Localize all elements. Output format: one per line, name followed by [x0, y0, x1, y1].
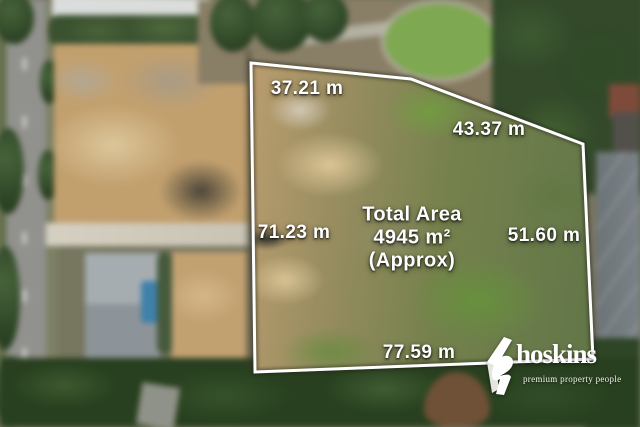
hoskins-h-ribbon-icon	[484, 337, 520, 395]
measurement-label-left: 71.23 m	[258, 222, 331, 244]
agency-name: hoskins	[516, 339, 596, 370]
total-area-qualifier: (Approx)	[362, 250, 462, 273]
measurement-label-top: 37.21 m	[271, 78, 344, 100]
total-area-caption: Total Area 4945 m² (Approx)	[362, 204, 462, 273]
measurement-label-bottom: 77.59 m	[383, 342, 456, 364]
measurement-label-top-right: 43.37 m	[453, 119, 526, 141]
agency-tagline: premium property people	[523, 374, 621, 384]
listing-image: 37.21 m 43.37 m 71.23 m 51.60 m 77.59 m …	[0, 0, 640, 427]
measurement-label-right: 51.60 m	[508, 225, 581, 247]
agency-logo: hoskins premium property people	[484, 334, 640, 398]
total-area-value: 4945 m²	[362, 227, 462, 250]
total-area-title: Total Area	[362, 204, 462, 227]
